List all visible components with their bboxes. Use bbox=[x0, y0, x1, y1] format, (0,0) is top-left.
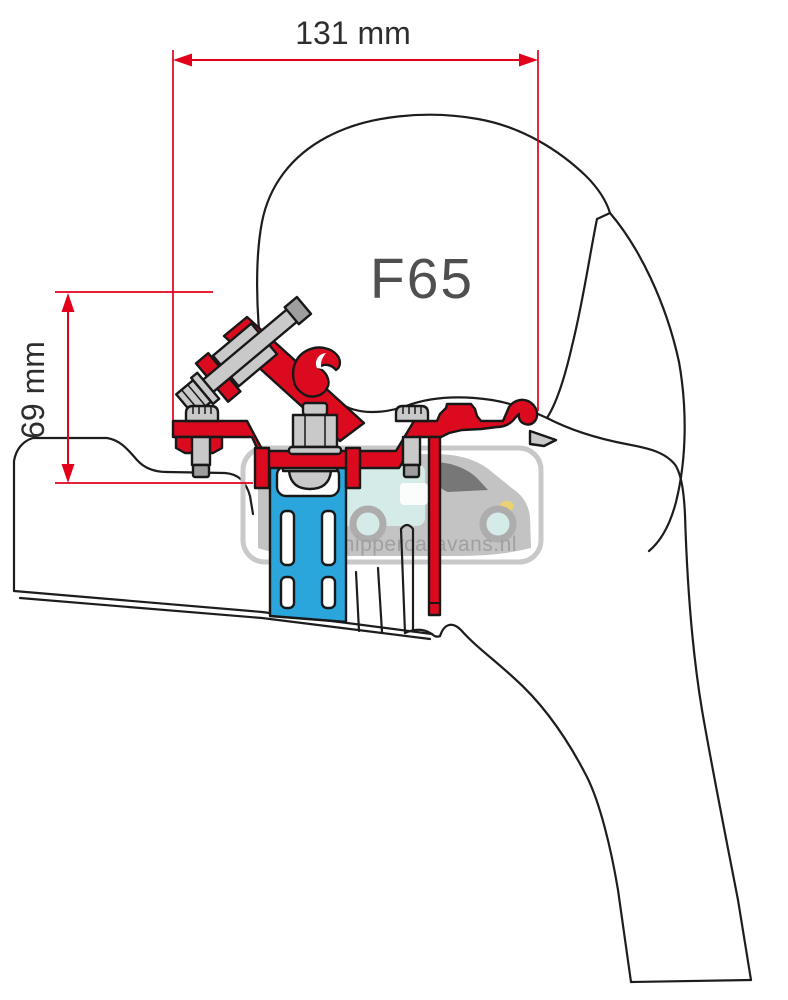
wall-left-edge bbox=[440, 625, 631, 982]
right-bolt-tip bbox=[404, 465, 419, 477]
roof-edge-lower-line bbox=[20, 598, 430, 639]
adapter-installation-diagram: Schippercaravans.nl bbox=[0, 0, 788, 1000]
rail-end-wedge bbox=[530, 431, 556, 446]
left-bolt-tip bbox=[193, 465, 209, 477]
bracket-slot bbox=[281, 577, 294, 608]
bracket-side-tab-right bbox=[346, 448, 360, 488]
width-arrow-right bbox=[519, 54, 538, 67]
awning-case-endcap-line bbox=[610, 213, 685, 551]
wall-right-edge bbox=[685, 515, 751, 980]
right-bolt-shank bbox=[403, 437, 420, 465]
height-arrow-top bbox=[62, 293, 75, 312]
product-label: F65 bbox=[370, 247, 474, 311]
height-arrow-bottom bbox=[62, 464, 75, 483]
bracket-slot bbox=[322, 577, 335, 608]
wall-top-edge bbox=[547, 418, 685, 515]
bracket-vertical-strip bbox=[429, 437, 440, 615]
center-bolt-cap bbox=[303, 403, 327, 415]
wall-seam-1 bbox=[356, 572, 359, 631]
center-bolt-nut bbox=[293, 415, 337, 447]
bracket-slot bbox=[322, 511, 335, 565]
right-bolt-head bbox=[396, 406, 428, 421]
watermark-van-door-window bbox=[400, 483, 428, 505]
wall-seam-2 bbox=[378, 568, 382, 632]
height-dimension-label: 69 mm bbox=[15, 341, 51, 439]
center-bolt-washer bbox=[289, 447, 341, 454]
rail-bracket-blue bbox=[270, 452, 346, 622]
left-bolt-head bbox=[186, 406, 218, 421]
width-dimension-label: 131 mm bbox=[295, 15, 411, 51]
roof-edge-upper-line bbox=[14, 591, 432, 634]
width-arrow-left bbox=[173, 54, 192, 67]
bracket-slot bbox=[281, 511, 294, 565]
left-bolt-shank bbox=[192, 437, 210, 465]
bracket-side-tab-left bbox=[255, 448, 269, 488]
roof-profile-line bbox=[14, 438, 253, 591]
awning-adapter-diagram-page: Schippercaravans.nl bbox=[0, 0, 788, 1000]
wall-bottom-edge bbox=[631, 980, 751, 982]
